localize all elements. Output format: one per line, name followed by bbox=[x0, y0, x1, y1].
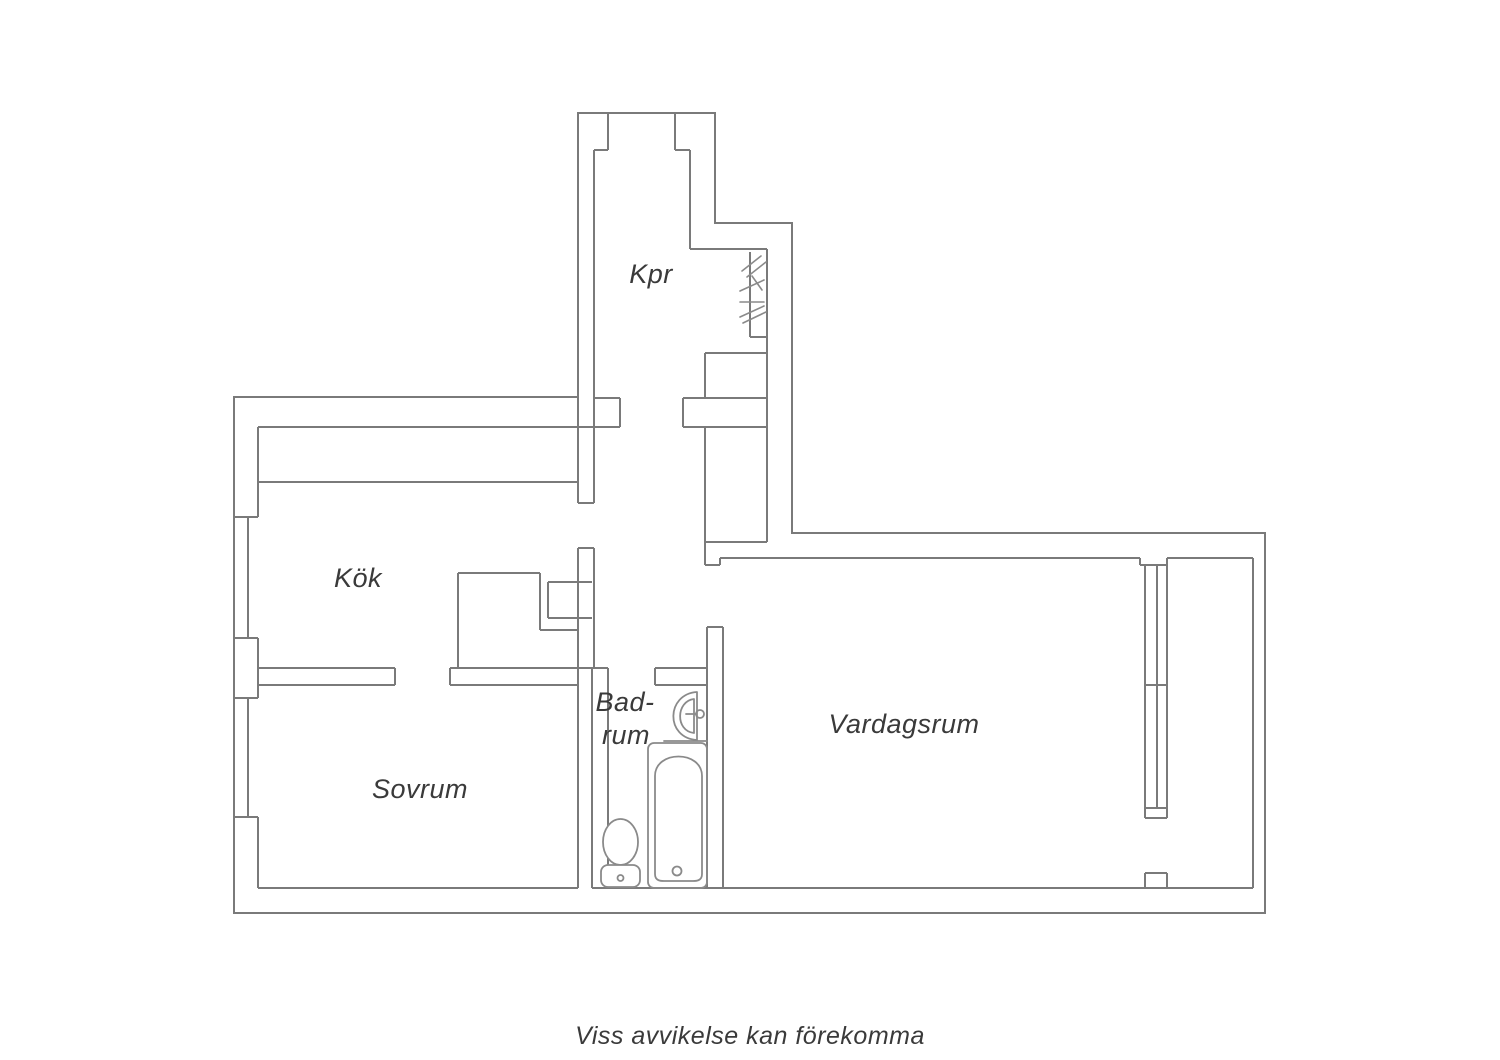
sink-icon bbox=[664, 692, 707, 741]
wall-lines bbox=[234, 113, 1253, 888]
toilet-icon bbox=[601, 819, 640, 887]
room-label-kok: Kök bbox=[334, 563, 383, 593]
disclaimer-caption: Viss avvikelse kan förekomma bbox=[575, 1022, 925, 1050]
room-label-kpr: Kpr bbox=[629, 259, 673, 289]
room-label-sovrum: Sovrum bbox=[372, 774, 468, 804]
room-label-vardagsrum: Vardagsrum bbox=[828, 709, 979, 739]
floor-plan-page: Kpr Kök Bad- rum Sovrum Vardagsrum Viss … bbox=[0, 0, 1500, 1060]
floor-plan-canvas: Kpr Kök Bad- rum Sovrum Vardagsrum Viss … bbox=[0, 0, 1500, 1060]
wardrobe-hatch-icon bbox=[740, 256, 766, 323]
room-label-badrum-line2: rum bbox=[602, 720, 650, 750]
bathtub-icon bbox=[648, 743, 707, 888]
room-label-badrum-line1: Bad- bbox=[595, 687, 654, 717]
